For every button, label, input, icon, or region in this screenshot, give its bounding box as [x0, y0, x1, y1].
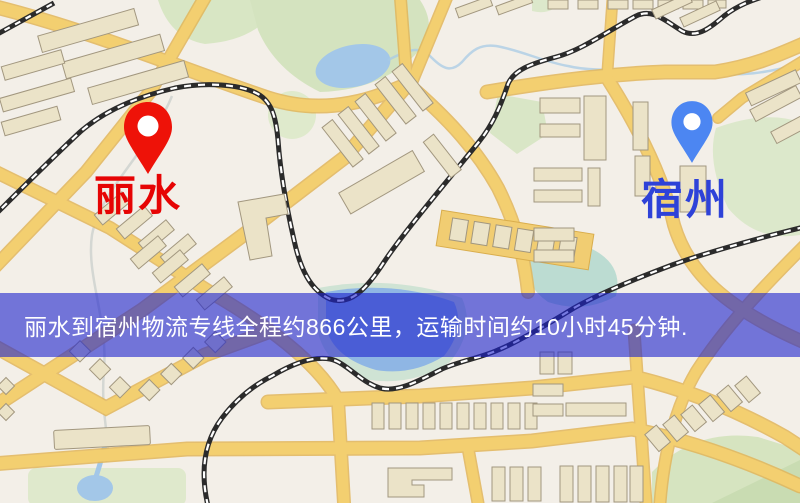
destination-pin[interactable] [668, 97, 716, 167]
map-screenshot: 丽水 宿州 丽水到宿州物流专线全程约866公里，运输时间约10小时45分钟. [0, 0, 800, 503]
origin-pin-icon [120, 100, 176, 176]
origin-city-label: 丽水 [94, 175, 182, 217]
destination-city-label: 宿州 [641, 179, 729, 221]
route-info-text: 丽水到宿州物流专线全程约866公里，运输时间约10小时45分钟. [0, 308, 688, 342]
map-canvas [0, 0, 800, 503]
origin-pin[interactable] [120, 100, 176, 176]
destination-pin-icon [668, 97, 716, 167]
route-info-banner: 丽水到宿州物流专线全程约866公里，运输时间约10小时45分钟. [0, 293, 800, 357]
